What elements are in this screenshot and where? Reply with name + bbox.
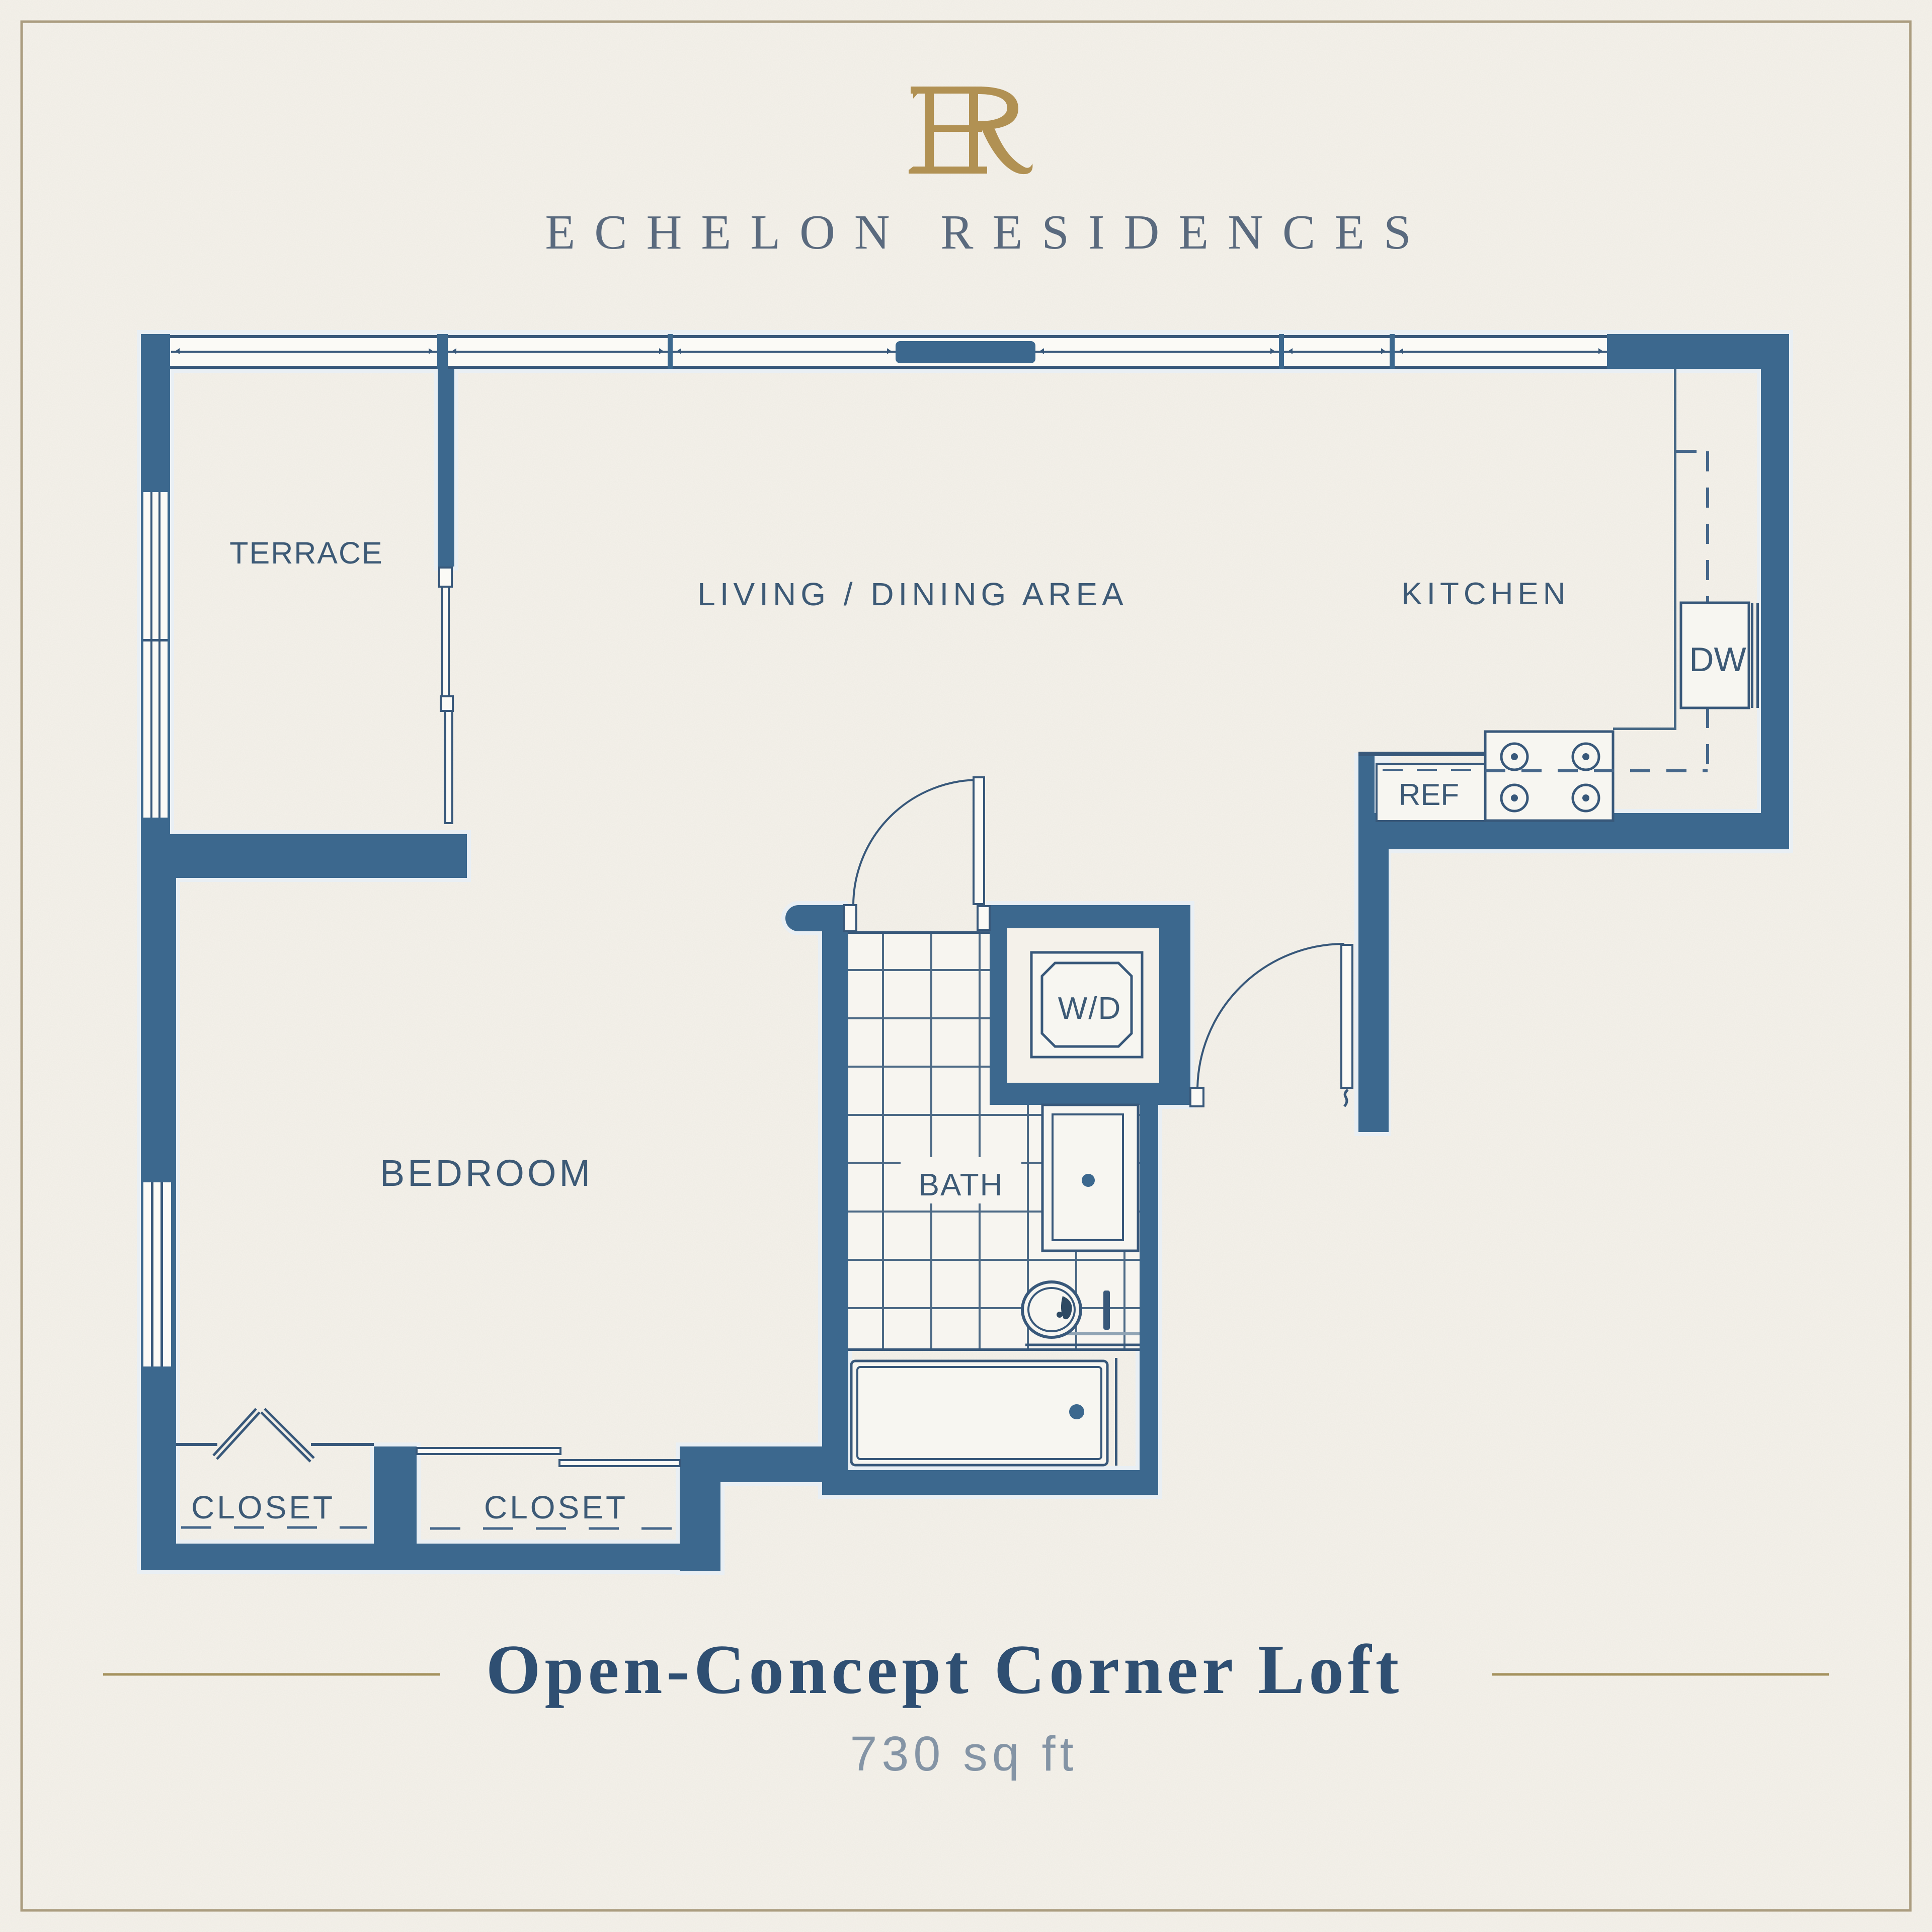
svg-text:BEDROOM: BEDROOM <box>380 1152 593 1194</box>
svg-text:DW: DW <box>1689 640 1746 679</box>
svg-text:CLOSET: CLOSET <box>191 1489 335 1525</box>
svg-text:LIVING / DINING AREA: LIVING / DINING AREA <box>697 576 1128 612</box>
svg-text:REF: REF <box>1399 778 1459 812</box>
svg-text:CLOSET: CLOSET <box>484 1489 628 1525</box>
svg-text:ECHELON RESIDENCES: ECHELON RESIDENCES <box>545 205 1430 260</box>
svg-text:730 sq ft: 730 sq ft <box>850 1726 1078 1781</box>
svg-text:W/D: W/D <box>1058 991 1122 1026</box>
svg-text:Open-Concept Corner Loft: Open-Concept Corner Loft <box>486 1631 1403 1709</box>
svg-text:TERRACE: TERRACE <box>229 536 383 570</box>
svg-text:BATH: BATH <box>919 1168 1004 1202</box>
svg-text:KITCHEN: KITCHEN <box>1401 577 1570 611</box>
